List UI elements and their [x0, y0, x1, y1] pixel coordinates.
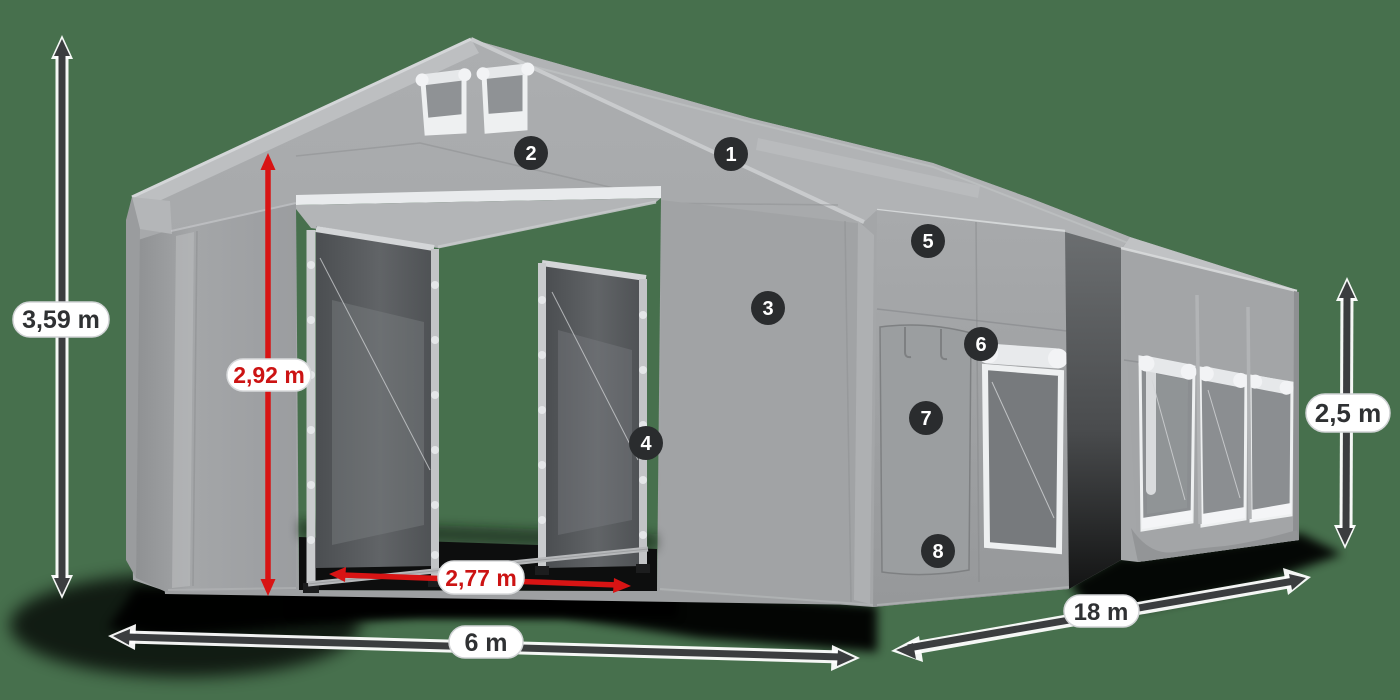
svg-text:2,77 m: 2,77 m	[445, 565, 517, 591]
svg-text:2: 2	[525, 143, 536, 165]
svg-text:2,92 m: 2,92 m	[233, 362, 305, 388]
svg-text:6: 6	[975, 334, 986, 356]
svg-text:6 m: 6 m	[464, 629, 507, 657]
svg-text:3,59 m: 3,59 m	[22, 306, 100, 334]
svg-text:4: 4	[640, 433, 652, 455]
svg-text:3: 3	[762, 298, 773, 320]
svg-text:2,5 m: 2,5 m	[1315, 398, 1382, 428]
svg-text:1: 1	[725, 144, 736, 166]
svg-text:8: 8	[932, 541, 943, 563]
svg-text:5: 5	[922, 231, 933, 253]
svg-text:18 m: 18 m	[1074, 599, 1129, 626]
svg-text:7: 7	[920, 408, 931, 430]
